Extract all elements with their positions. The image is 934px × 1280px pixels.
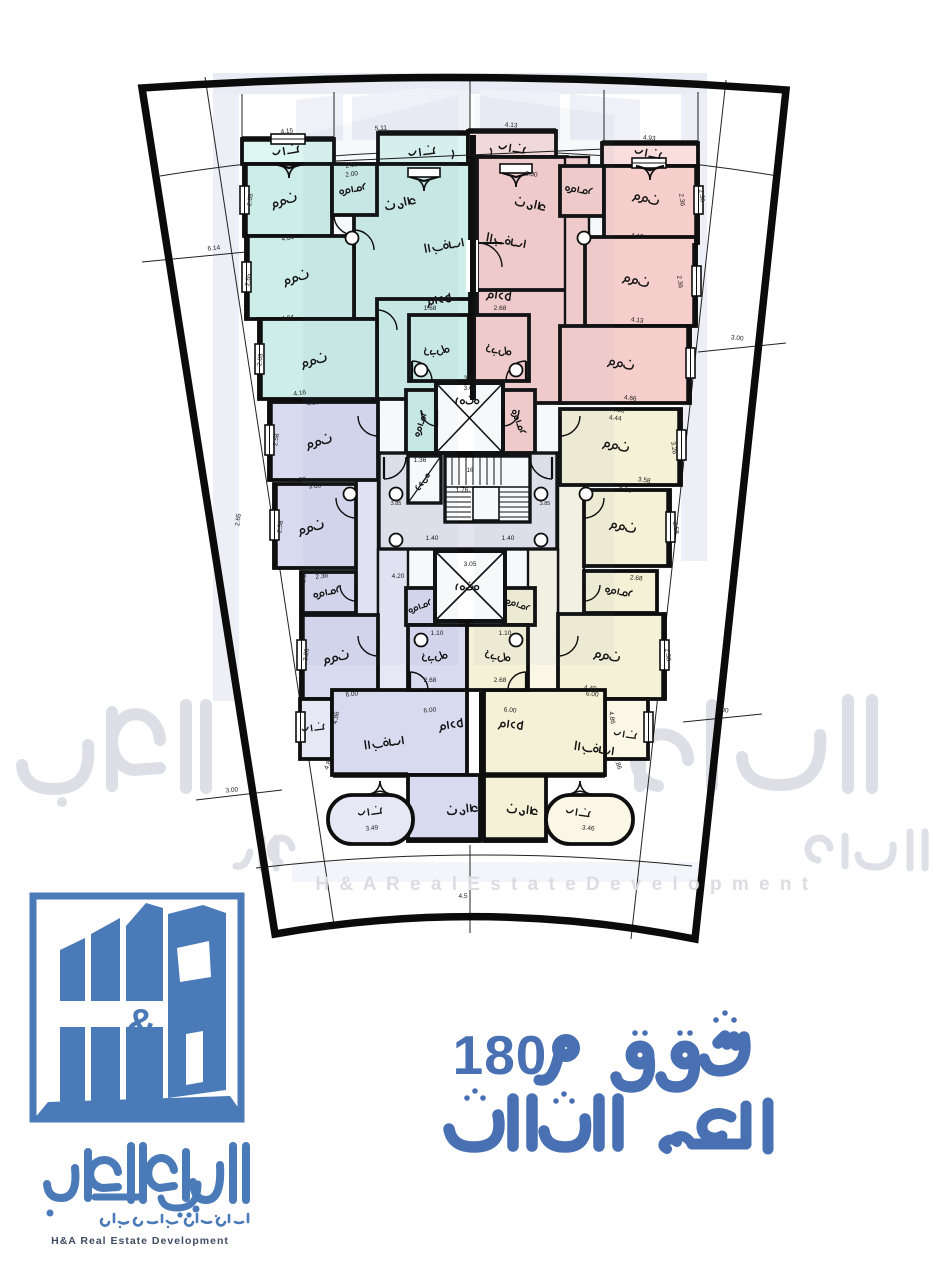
svg-text:3.04: 3.04 [464,375,477,382]
svg-text:1.10: 1.10 [499,630,512,637]
svg-text:1.36: 1.36 [414,457,427,464]
svg-text:1.40: 1.40 [502,535,515,542]
svg-text:6.00: 6.00 [504,707,517,715]
svg-text:4.40: 4.40 [583,684,597,692]
svg-text:180: 180 [453,1024,548,1086]
svg-text:3.58: 3.58 [618,486,632,494]
svg-text:H&A Real Estate Development: H&A Real Estate Development [51,1235,229,1247]
svg-text:1.76: 1.76 [456,487,469,494]
svg-text:H & A R e a l E s t a t e: H & A R e a l E s t a t e D e v e l o p … [315,874,810,895]
svg-text:4.07: 4.07 [306,399,320,407]
svg-text:3.85: 3.85 [391,501,402,507]
svg-text:1.68: 1.68 [424,305,437,312]
svg-text:3.05: 3.05 [464,561,477,568]
svg-text:1.40: 1.40 [426,535,439,542]
svg-text:6.00: 6.00 [345,690,359,698]
svg-text:4.15: 4.15 [280,127,294,135]
svg-text:6.14: 6.14 [207,244,221,252]
svg-text:3.00: 3.00 [225,786,239,794]
svg-text:3.04: 3.04 [464,385,477,392]
svg-text:&: & [126,1000,156,1047]
svg-text:3.68: 3.68 [308,482,322,490]
svg-text:16: 16 [467,468,474,474]
svg-text:4.20: 4.20 [392,573,405,580]
svg-text:1.10: 1.10 [431,630,444,637]
svg-text:4.66: 4.66 [611,406,625,414]
svg-text:3.85: 3.85 [540,501,551,507]
svg-text:2.68: 2.68 [424,677,437,684]
svg-text:2.68: 2.68 [629,574,643,582]
svg-text:2.68: 2.68 [494,677,507,684]
svg-text:4.93: 4.93 [642,134,656,142]
svg-text:4.13: 4.13 [505,122,518,130]
svg-text:3.49: 3.49 [365,824,379,832]
svg-text:3.00: 3.00 [730,334,744,342]
svg-text:5.11: 5.11 [375,125,388,133]
svg-text:4.44: 4.44 [608,414,622,422]
svg-text:3.46: 3.46 [581,824,595,832]
svg-text:6.00: 6.00 [423,707,436,715]
svg-text:2.68: 2.68 [494,305,507,312]
